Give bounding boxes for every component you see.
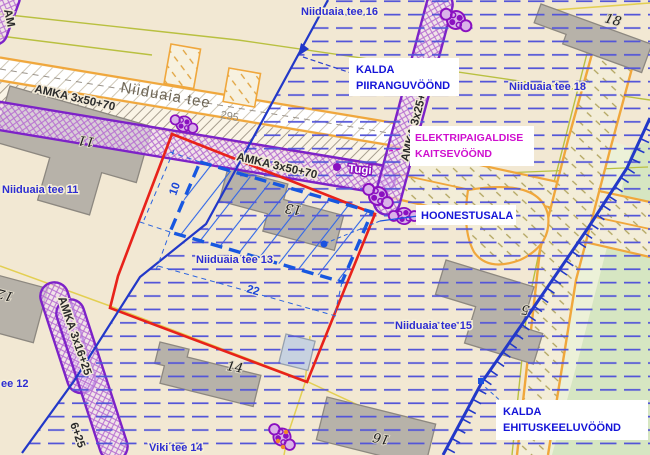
parcel-label-tee15: Niiduaia tee 15 — [395, 320, 472, 332]
callout-kalda-piiranguvoond: KALDA PIIRANGUVÖÖND — [349, 58, 459, 96]
callout-text: ELEKTRIPAIGALDISE — [415, 132, 523, 144]
house-number-13: 13 — [284, 200, 302, 217]
support-pole-label: Tugi — [348, 163, 372, 177]
callout-text: EHITUSKEELUVÖÖND — [503, 421, 621, 434]
leader-square — [478, 378, 484, 384]
callout-text: KALDA — [356, 64, 395, 76]
map-canvas: Niiduaia tee 295 AMKA 3x50+70 AMKA 3x50+… — [0, 0, 650, 455]
parcel-label-tee11: Niiduaia tee 11 — [2, 184, 78, 196]
callout-hoonestusala: HOONESTUSALA — [416, 205, 516, 225]
callout-text: HOONESTUSALA — [421, 210, 513, 222]
callout-text: PIIRANGUVÖÖND — [356, 79, 450, 92]
callout-kalda-ehituskeeluvoond: KALDA EHITUSKEELUVÖÖND — [496, 400, 648, 440]
callout-text: KALDA — [503, 406, 542, 418]
callout-text: KAITSEVÖÖND — [415, 147, 492, 160]
pole-dot — [333, 163, 341, 171]
parcel-label-tee16: Niiduaia tee 16 — [301, 6, 378, 18]
parcel-label-tee18: Niiduaia tee 18 — [509, 81, 586, 93]
parcel-label-tee13: Niiduaia tee 13 — [196, 254, 273, 266]
callout-elektripaigaldise-kaitsevoond: ELEKTRIPAIGALDISE KAITSEVÖÖND — [410, 126, 534, 166]
house-number-11: 11 — [77, 132, 95, 149]
parcel-label-viki14: Viki tee 14 — [149, 442, 203, 454]
parcel-label-tee12: ee 12 — [1, 378, 29, 390]
leader-dot — [321, 241, 328, 248]
detail-plan-map[interactable]: Niiduaia tee 295 AMKA 3x50+70 AMKA 3x50+… — [0, 0, 650, 455]
house-number-14: 14 — [225, 359, 244, 377]
